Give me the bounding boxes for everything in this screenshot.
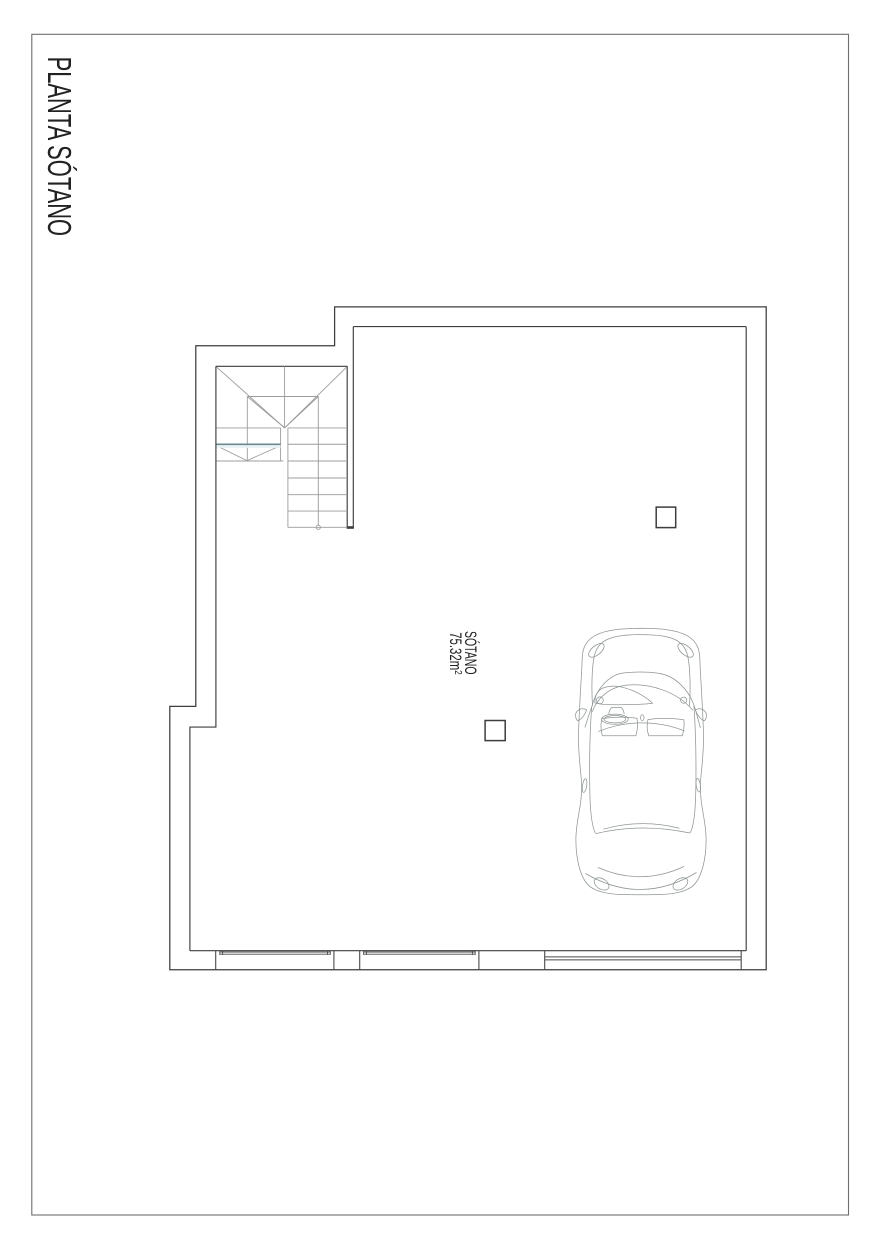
svg-text:2: 2 [452,670,463,675]
svg-text:75.32m: 75.32m [446,632,464,670]
svg-text:PLANTA SÓTANO: PLANTA SÓTANO [41,57,78,237]
